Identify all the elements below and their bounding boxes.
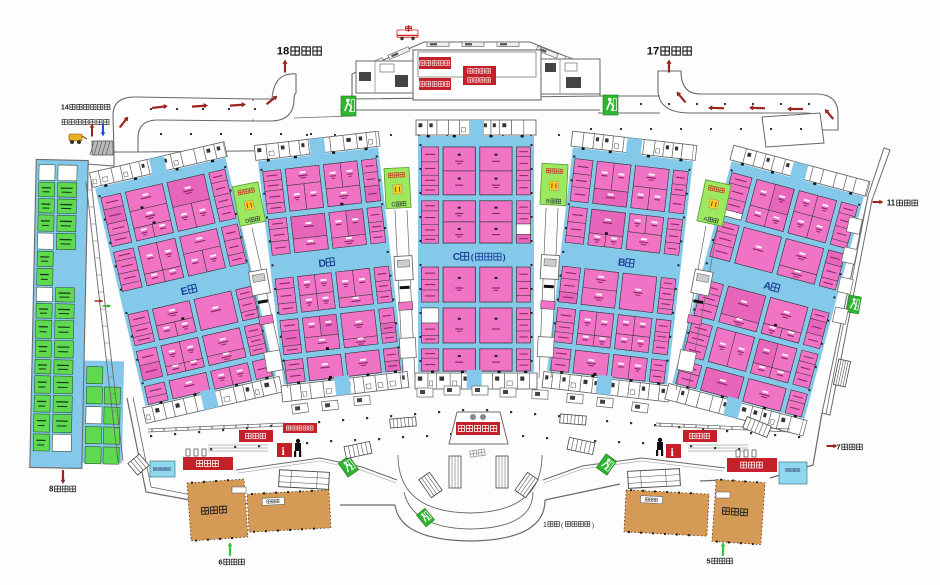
svg-text:6: 6 (218, 558, 222, 567)
svg-text:18: 18 (277, 46, 290, 58)
svg-text:B: B (546, 199, 550, 205)
svg-text:11: 11 (887, 199, 896, 208)
svg-text:8: 8 (49, 485, 54, 494)
svg-text:C: C (453, 251, 461, 263)
svg-text:17: 17 (647, 46, 660, 58)
svg-text:C: C (391, 202, 395, 208)
svg-text:(: ( (471, 252, 474, 262)
svg-text:14: 14 (61, 103, 69, 111)
svg-text:7: 7 (836, 443, 840, 452)
svg-text:): ) (503, 252, 506, 262)
svg-text:): ) (592, 522, 594, 529)
svg-text:1: 1 (543, 522, 547, 529)
